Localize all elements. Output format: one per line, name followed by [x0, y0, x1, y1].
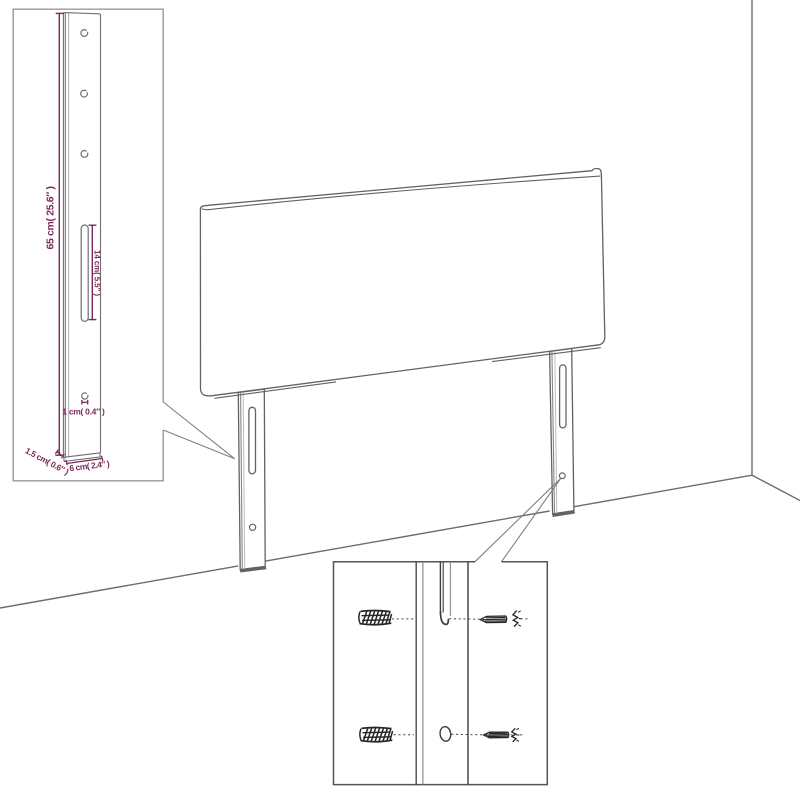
- svg-text:1 cm( 0.4″ ): 1 cm( 0.4″ ): [62, 407, 105, 417]
- svg-text:65 cm( 25.6″ ): 65 cm( 25.6″ ): [45, 186, 57, 250]
- svg-text:14 cm( 5.5″ ): 14 cm( 5.5″ ): [93, 250, 102, 296]
